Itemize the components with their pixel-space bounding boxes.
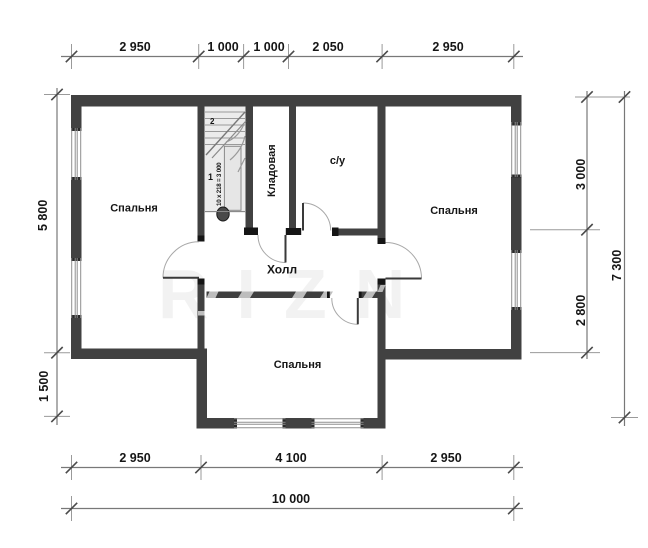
svg-text:5 800: 5 800	[36, 200, 50, 231]
svg-text:с/у: с/у	[330, 155, 346, 167]
svg-text:2 950: 2 950	[119, 40, 150, 54]
svg-text:10 х 218 = 3 000: 10 х 218 = 3 000	[216, 162, 223, 206]
svg-text:Спальня: Спальня	[274, 359, 322, 371]
svg-text:Спальня: Спальня	[110, 203, 158, 215]
svg-text:10 000: 10 000	[272, 492, 310, 506]
svg-text:2: 2	[210, 117, 215, 126]
svg-text:Кладовая: Кладовая	[266, 144, 278, 197]
svg-text:1 500: 1 500	[37, 371, 51, 402]
svg-text:2 950: 2 950	[430, 451, 461, 465]
svg-text:3 000: 3 000	[574, 159, 588, 190]
svg-text:Холл: Холл	[267, 263, 297, 277]
svg-text:7 300: 7 300	[610, 250, 624, 281]
svg-text:Спальня: Спальня	[430, 205, 478, 217]
svg-text:1 000: 1 000	[207, 40, 238, 54]
svg-text:4 100: 4 100	[275, 451, 306, 465]
svg-text:2 950: 2 950	[432, 40, 463, 54]
svg-text:2 950: 2 950	[119, 451, 150, 465]
svg-text:1: 1	[208, 172, 213, 182]
svg-text:2 800: 2 800	[574, 295, 588, 326]
svg-text:2 050: 2 050	[312, 40, 343, 54]
svg-text:1 000: 1 000	[253, 40, 284, 54]
